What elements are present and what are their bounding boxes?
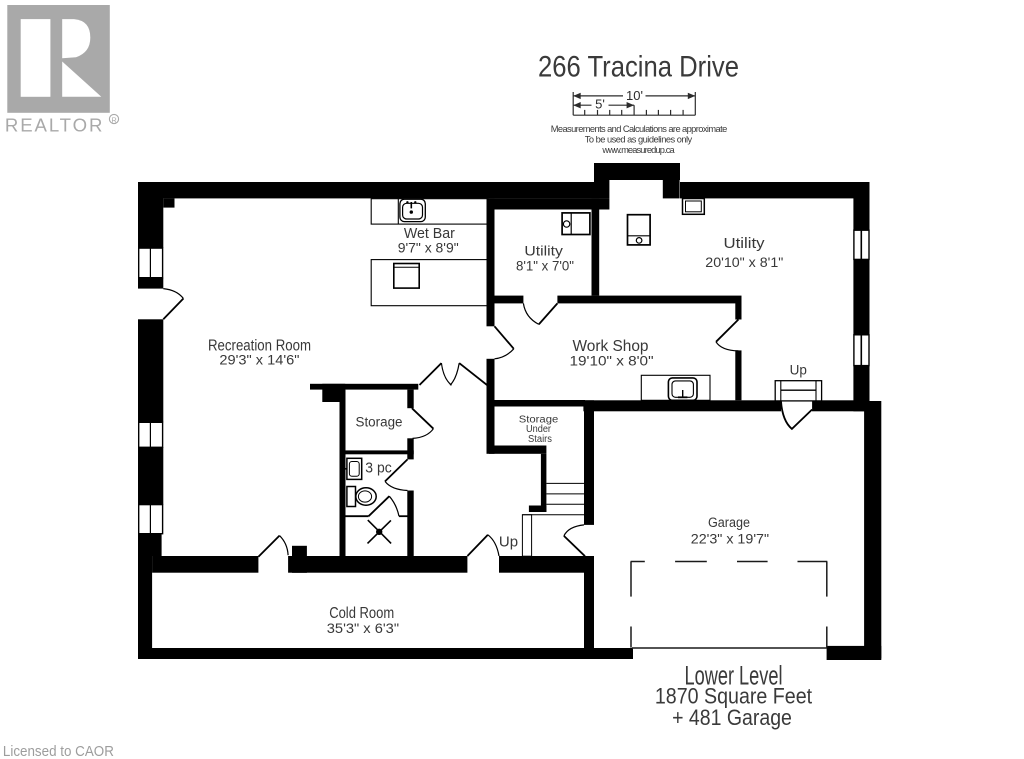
svg-text:REALTOR: REALTOR bbox=[5, 115, 104, 136]
svg-text:Utility: Utility bbox=[524, 243, 563, 259]
svg-text:To be used as guidelines only: To be used as guidelines only bbox=[585, 134, 693, 144]
svg-text:19'10" x 8'0": 19'10" x 8'0" bbox=[570, 353, 654, 369]
svg-text:3 pc: 3 pc bbox=[365, 460, 392, 477]
svg-text:Measurements and Calculations: Measurements and Calculations are approx… bbox=[551, 124, 728, 134]
svg-text:Garage: Garage bbox=[708, 515, 750, 530]
svg-text:Storage: Storage bbox=[356, 415, 403, 430]
svg-text:20'10" x 8'1": 20'10" x 8'1" bbox=[705, 254, 783, 270]
svg-text:www.measuredup.ca: www.measuredup.ca bbox=[601, 145, 675, 155]
svg-text:Licensed to CAOR: Licensed to CAOR bbox=[3, 743, 114, 759]
svg-text:22'3" x 19'7": 22'3" x 19'7" bbox=[691, 531, 769, 547]
svg-text:Stairs: Stairs bbox=[528, 434, 552, 445]
svg-text:Up: Up bbox=[499, 534, 518, 551]
svg-text:9'7" x 8'9": 9'7" x 8'9" bbox=[398, 240, 459, 256]
svg-text:Utility: Utility bbox=[724, 235, 766, 252]
svg-text:29'3" x 14'6": 29'3" x 14'6" bbox=[219, 352, 299, 368]
svg-text:R: R bbox=[111, 115, 116, 124]
svg-text:+ 481 Garage: + 481 Garage bbox=[672, 705, 792, 730]
svg-text:35'3" x 6'3": 35'3" x 6'3" bbox=[327, 620, 399, 636]
svg-text:266 Tracina Drive: 266 Tracina Drive bbox=[538, 50, 739, 83]
svg-text:8'1" x 7'0": 8'1" x 7'0" bbox=[516, 258, 574, 274]
svg-text:10': 10' bbox=[626, 88, 643, 103]
svg-text:5': 5' bbox=[595, 96, 605, 111]
svg-text:Up: Up bbox=[790, 363, 807, 378]
